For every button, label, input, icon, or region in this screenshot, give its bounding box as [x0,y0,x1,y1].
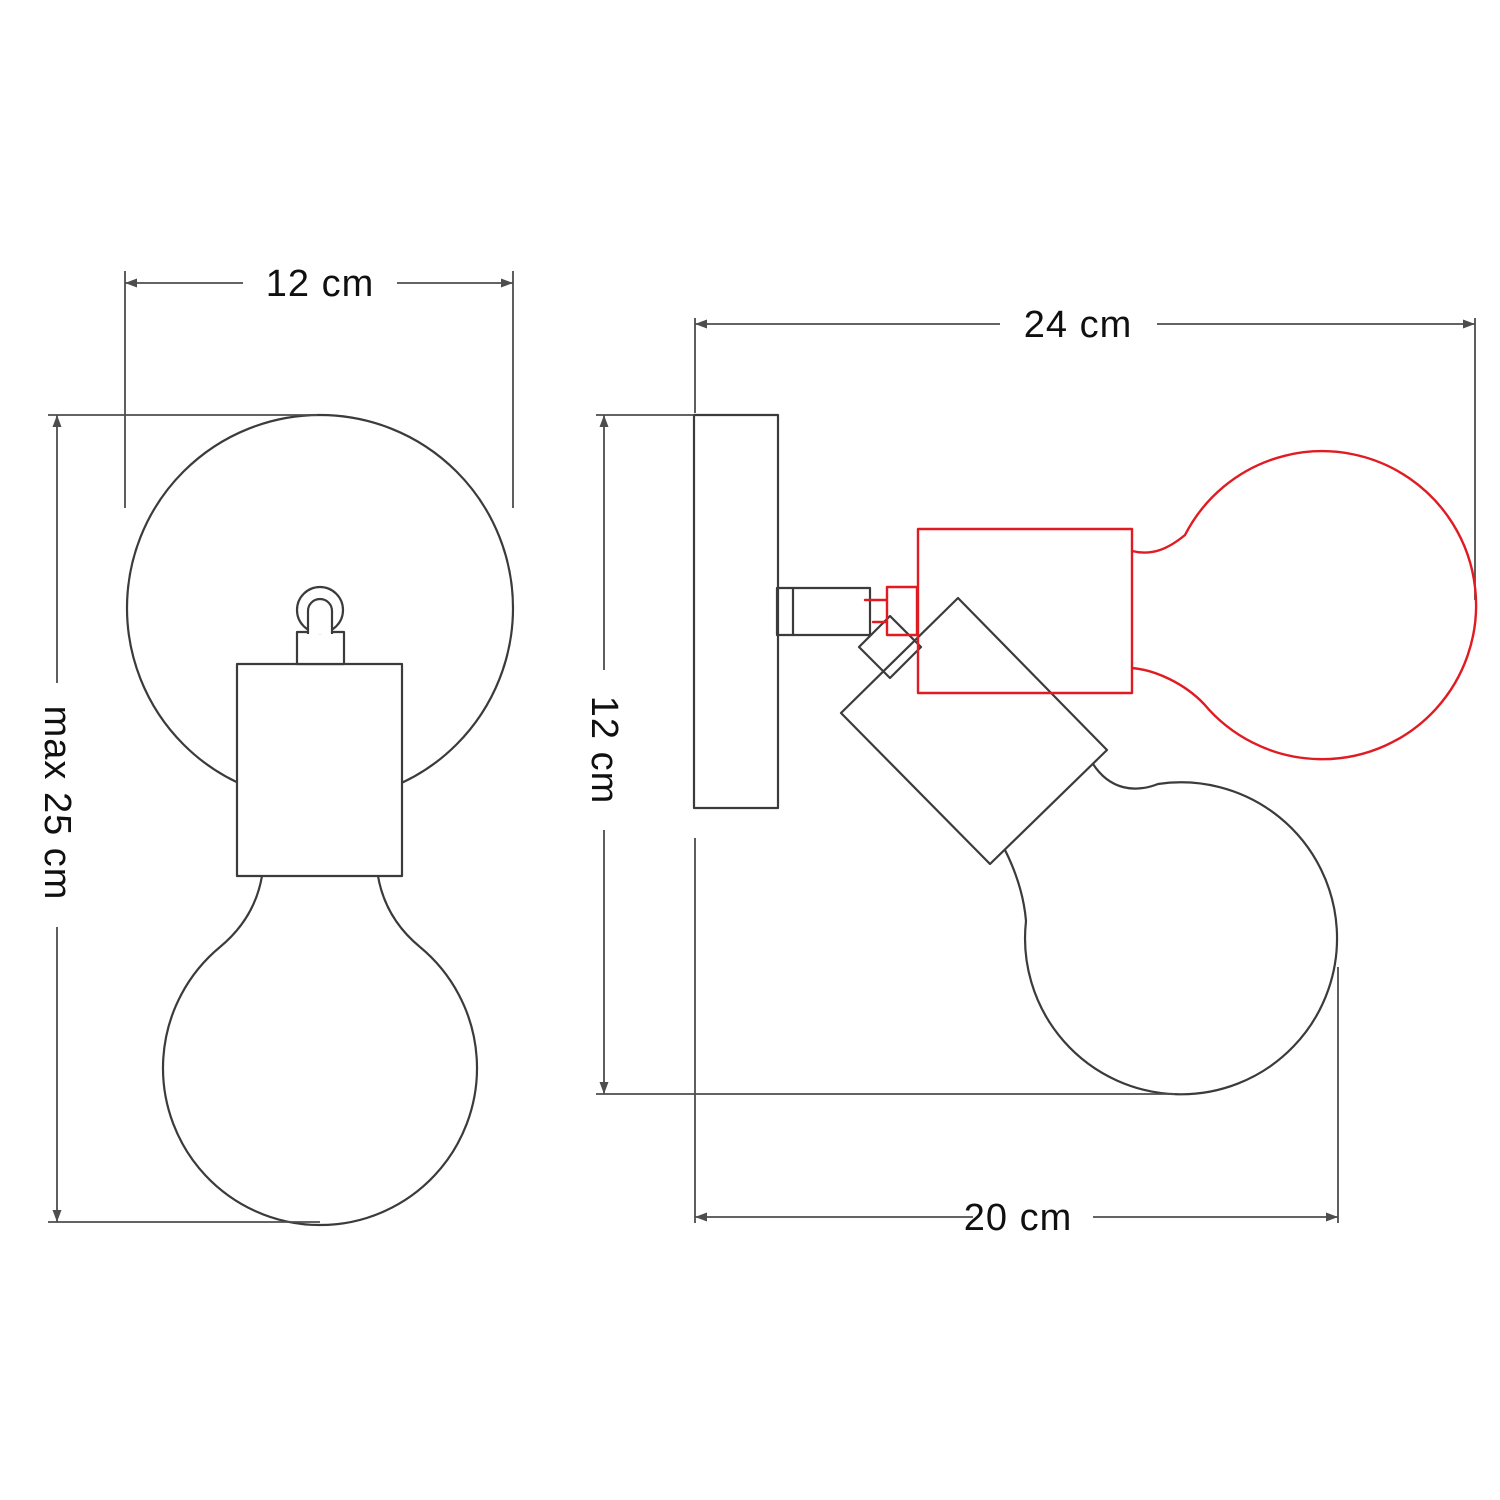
dimension-side-projection: 20 cm [695,838,1338,1239]
arrowhead-left [125,279,137,288]
socket-neck-front [297,632,344,664]
dimension-side-plate-height: 12 cm [583,415,1175,1094]
lamp-socket-front [237,664,402,876]
arrowhead-down [600,1082,609,1094]
front-view: 12 cm max 25 cm [36,263,513,1225]
light-bulb-side-red [1132,451,1476,759]
dimension-label-front-height: max 25 cm [36,706,78,901]
arrowhead-up [600,415,609,427]
dimension-label-side-projection: 20 cm [964,1197,1072,1239]
swivel-joint-black [859,616,921,678]
arrowhead-up [53,415,62,427]
arrowhead-right [1463,320,1475,329]
technical-drawing-canvas: 12 cm max 25 cm 24 cm [0,0,1500,1500]
dimension-label-front-width: 12 cm [266,263,374,305]
side-view: 24 cm 12 cm [583,304,1476,1239]
dimension-side-depth: 24 cm [695,304,1475,600]
arrowhead-right [1326,1213,1338,1222]
lamp-socket-side-black [841,598,1107,864]
light-bulb-side-black [1005,764,1337,1094]
arrowhead-down [53,1210,62,1222]
lamp-socket-side-red [918,529,1132,693]
mounting-arm [777,588,870,635]
dimension-label-side-plate-height: 12 cm [583,696,625,804]
wall-lamp-dimension-drawing: 12 cm max 25 cm 24 cm [0,0,1500,1500]
wall-plate-side [694,415,778,808]
light-bulb-front [163,876,477,1225]
alternate-position-red [865,451,1476,759]
dimension-label-side-depth: 24 cm [1024,304,1132,346]
arrowhead-left [695,320,707,329]
hanging-loop-hole [308,599,332,634]
arrowhead-right [501,279,513,288]
arrowhead-left [695,1213,707,1222]
